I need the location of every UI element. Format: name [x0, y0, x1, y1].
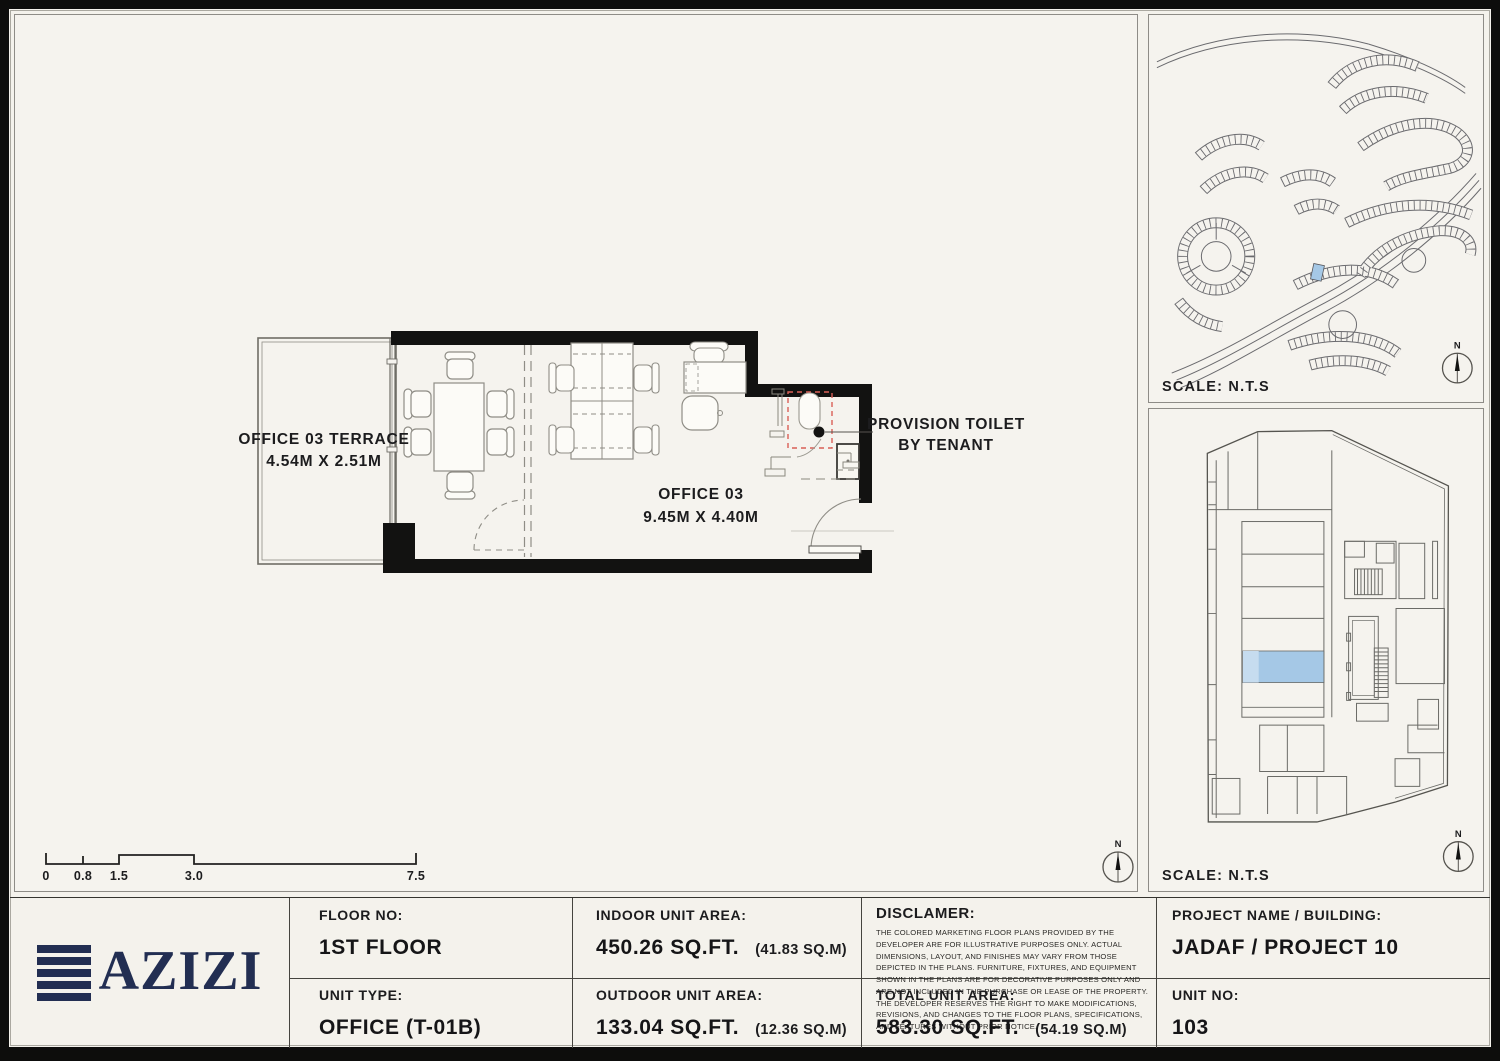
- total-area-value: 583.30 SQ.FT.: [876, 1016, 1019, 1040]
- scale-tick-15: 1.5: [110, 869, 128, 883]
- floorplan-sheet: OFFICE 03 TERRACE 4.54M X 2.51M OFFICE 0…: [0, 0, 1500, 1061]
- indoor-area-value: 450.26 SQ.FT.: [596, 936, 739, 960]
- site-map-panel: N SCALE: N.T.S: [1148, 14, 1484, 403]
- outdoor-area-value: 133.04 SQ.FT.: [596, 1016, 739, 1040]
- provision-note-line2: BY TENANT: [898, 437, 994, 454]
- provision-toilet: [765, 389, 873, 479]
- north-arrow-icon: N: [1103, 839, 1133, 882]
- scale-tick-30: 3.0: [185, 869, 203, 883]
- total-area-cell: TOTAL UNIT AREA: 583.30 SQ.FT. (54.19 SQ…: [861, 978, 1156, 1048]
- scale-tick-08: 0.8: [74, 869, 92, 883]
- total-area-label: TOTAL UNIT AREA:: [876, 987, 1156, 1003]
- office-dims: 9.45M X 4.40M: [643, 509, 759, 526]
- indoor-area-label: INDOOR UNIT AREA:: [596, 907, 861, 923]
- outdoor-area-label: OUTDOOR UNIT AREA:: [596, 987, 861, 1003]
- disclaimer-cell: DISCLAMER: THE COLORED MARKETING FLOOR P…: [861, 898, 1156, 978]
- terrace-outline: [258, 338, 397, 564]
- scale-tick-0: 0: [42, 869, 49, 883]
- terrace-label: OFFICE 03 TERRACE: [238, 431, 409, 448]
- workstations: [549, 343, 659, 459]
- unit-no-label: UNIT NO:: [1172, 987, 1490, 1003]
- floorplan-panel: OFFICE 03 TERRACE 4.54M X 2.51M OFFICE 0…: [14, 14, 1138, 892]
- disclaimer-label: DISCLAMER:: [876, 905, 1156, 922]
- outdoor-area-metric: (12.36 SQ.M): [755, 1022, 847, 1038]
- site-scale-label: SCALE: N.T.S: [1162, 379, 1270, 395]
- site-map-drawing: N: [1149, 15, 1483, 402]
- north-arrow-icon: N: [1442, 340, 1472, 383]
- project-name-cell: PROJECT NAME / BUILDING: JADAF / PROJECT…: [1156, 898, 1490, 978]
- project-name-label: PROJECT NAME / BUILDING:: [1172, 907, 1490, 923]
- unit-type-value: OFFICE (T-01B): [319, 1016, 572, 1040]
- north-arrow-icon: N: [1443, 829, 1473, 872]
- floor-no-label: FLOOR NO:: [319, 907, 572, 923]
- site-plot-bands: [1179, 60, 1471, 371]
- azizi-logo-wordmark: AZIZI: [99, 943, 263, 999]
- north-letter: N: [1115, 839, 1122, 850]
- title-block: AZIZI FLOOR NO: 1ST FLOOR UNIT TYPE: OFF…: [10, 897, 1490, 1048]
- azizi-logo-bars-icon: [37, 945, 91, 1001]
- north-letter: N: [1454, 340, 1461, 350]
- scale-bar: 0 0.8 1.5 3.0 7.5: [42, 853, 425, 883]
- entry-door: [791, 499, 894, 553]
- indoor-area-cell: INDOOR UNIT AREA: 450.26 SQ.FT. (41.83 S…: [572, 898, 861, 978]
- total-area-metric: (54.19 SQ.M): [1035, 1022, 1127, 1038]
- floorplan-drawing: OFFICE 03 TERRACE 4.54M X 2.51M OFFICE 0…: [15, 15, 1137, 891]
- outdoor-area-cell: OUTDOOR UNIT AREA: 133.04 SQ.FT. (12.36 …: [572, 978, 861, 1048]
- leader-dot: [814, 427, 825, 438]
- terrace-dims: 4.54M X 2.51M: [266, 453, 382, 470]
- unit-type-label: UNIT TYPE:: [319, 987, 572, 1003]
- project-name-value: JADAF / PROJECT 10: [1172, 936, 1490, 960]
- key-highlighted-unit: [1243, 651, 1324, 683]
- key-plan-drawing: N: [1149, 409, 1483, 891]
- key-plan-panel: N SCALE: N.T.S: [1148, 408, 1484, 892]
- azizi-logo: AZIZI: [10, 898, 289, 1048]
- north-letter: N: [1455, 829, 1462, 839]
- building-outline: [1207, 431, 1448, 822]
- manager-desk: [682, 342, 746, 430]
- unit-no-value: 103: [1172, 1016, 1490, 1040]
- key-scale-label: SCALE: N.T.S: [1162, 868, 1270, 884]
- office-label: OFFICE 03: [658, 486, 744, 503]
- scale-tick-75: 7.5: [407, 869, 425, 883]
- provision-note-line1: PROVISION TOILET: [867, 416, 1025, 433]
- floor-no-cell: FLOOR NO: 1ST FLOOR: [289, 898, 572, 978]
- unit-type-cell: UNIT TYPE: OFFICE (T-01B): [289, 978, 572, 1048]
- meeting-table: [404, 352, 514, 499]
- floor-no-value: 1ST FLOOR: [319, 936, 572, 960]
- unit-no-cell: UNIT NO: 103: [1156, 978, 1490, 1048]
- indoor-area-metric: (41.83 SQ.M): [755, 942, 847, 958]
